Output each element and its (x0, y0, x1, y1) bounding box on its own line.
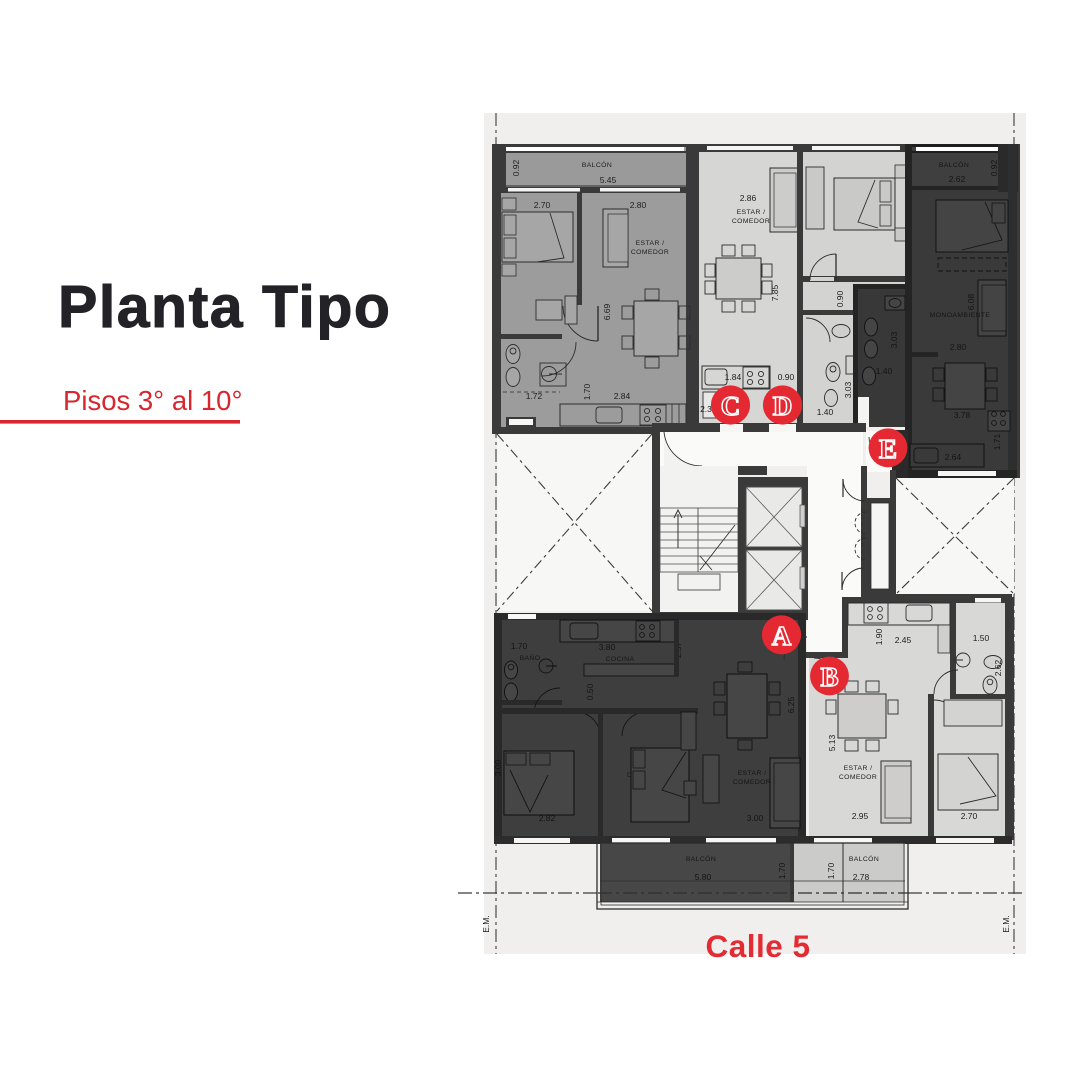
svg-text:1.70: 1.70 (511, 641, 528, 651)
svg-text:2.64: 2.64 (945, 452, 962, 462)
svg-text:1.70: 1.70 (777, 862, 787, 879)
svg-text:2.84: 2.84 (614, 391, 631, 401)
svg-text:1.84: 1.84 (725, 372, 742, 382)
svg-text:BALCÓN: BALCÓN (849, 854, 879, 863)
svg-text:Planta Tipo: Planta Tipo (58, 274, 391, 340)
svg-text:1.70: 1.70 (826, 862, 836, 879)
svg-text:1.40: 1.40 (817, 407, 834, 417)
svg-text:0.50: 0.50 (585, 683, 595, 700)
svg-text:7.85: 7.85 (770, 284, 780, 301)
svg-text:2.80: 2.80 (630, 200, 647, 210)
svg-text:0.90: 0.90 (778, 372, 795, 382)
svg-text:BAÑO: BAÑO (520, 653, 541, 662)
svg-text:2.86: 2.86 (740, 193, 757, 203)
svg-text:1.70: 1.70 (582, 383, 592, 400)
svg-text:BALCÓN: BALCÓN (939, 160, 969, 169)
svg-text:E.M.: E.M. (481, 915, 491, 932)
svg-text:2.70: 2.70 (534, 200, 551, 210)
svg-text:5.13: 5.13 (827, 734, 837, 751)
svg-text:1.71: 1.71 (992, 433, 1002, 450)
svg-text:B: B (820, 662, 838, 692)
svg-text:COMEDOR: COMEDOR (839, 774, 877, 781)
svg-text:2.62: 2.62 (993, 659, 1003, 676)
svg-text:ESTAR /: ESTAR / (737, 209, 766, 216)
svg-text:Calle 5: Calle 5 (705, 928, 810, 964)
svg-text:ESTAR /: ESTAR / (738, 770, 767, 777)
svg-text:ESTAR /: ESTAR / (844, 765, 873, 772)
svg-text:6.08: 6.08 (966, 293, 976, 310)
svg-text:2.45: 2.45 (895, 635, 912, 645)
svg-text:COMEDOR: COMEDOR (732, 218, 770, 225)
svg-text:2.80: 2.80 (950, 342, 967, 352)
svg-text:1.50: 1.50 (973, 633, 990, 643)
svg-text:D: D (773, 391, 793, 421)
svg-text:COCINA: COCINA (606, 656, 635, 663)
svg-text:E: E (879, 434, 897, 464)
svg-text:BALCÓN: BALCÓN (582, 160, 612, 169)
svg-text:COMEDOR: COMEDOR (631, 249, 669, 256)
svg-text:2.70: 2.70 (961, 811, 978, 821)
svg-text:3.80: 3.80 (599, 642, 616, 652)
svg-text:C: C (721, 391, 741, 421)
svg-text:2.62: 2.62 (949, 174, 966, 184)
svg-text:6.69: 6.69 (602, 303, 612, 320)
svg-text:1.72: 1.72 (526, 391, 543, 401)
svg-text:2.3: 2.3 (700, 404, 712, 414)
svg-text:3.00: 3.00 (747, 813, 764, 823)
svg-text:0.90: 0.90 (835, 290, 845, 307)
svg-text:2.78: 2.78 (853, 872, 870, 882)
svg-text:1.90: 1.90 (874, 628, 884, 645)
svg-text:6.25: 6.25 (786, 696, 796, 713)
svg-text:ESTAR /: ESTAR / (636, 240, 665, 247)
svg-text:3.03: 3.03 (889, 331, 899, 348)
svg-text:BALCÓN: BALCÓN (686, 854, 716, 863)
svg-text:2.95: 2.95 (852, 811, 869, 821)
svg-text:5.80: 5.80 (695, 872, 712, 882)
svg-text:0.92: 0.92 (989, 159, 999, 176)
svg-text:A: A (772, 621, 792, 651)
svg-text:5.45: 5.45 (600, 175, 617, 185)
svg-text:MONOAMBIENTE: MONOAMBIENTE (930, 312, 991, 319)
svg-text:3.78: 3.78 (954, 410, 971, 420)
svg-text:E.M.: E.M. (1001, 915, 1011, 932)
svg-text:0.92: 0.92 (511, 159, 521, 176)
svg-text:3.03: 3.03 (843, 381, 853, 398)
svg-text:3.00: 3.00 (493, 759, 503, 776)
svg-text:COMEDOR: COMEDOR (733, 779, 771, 786)
svg-text:1.40: 1.40 (876, 366, 893, 376)
svg-text:Pisos 3° al 10°: Pisos 3° al 10° (63, 385, 242, 416)
